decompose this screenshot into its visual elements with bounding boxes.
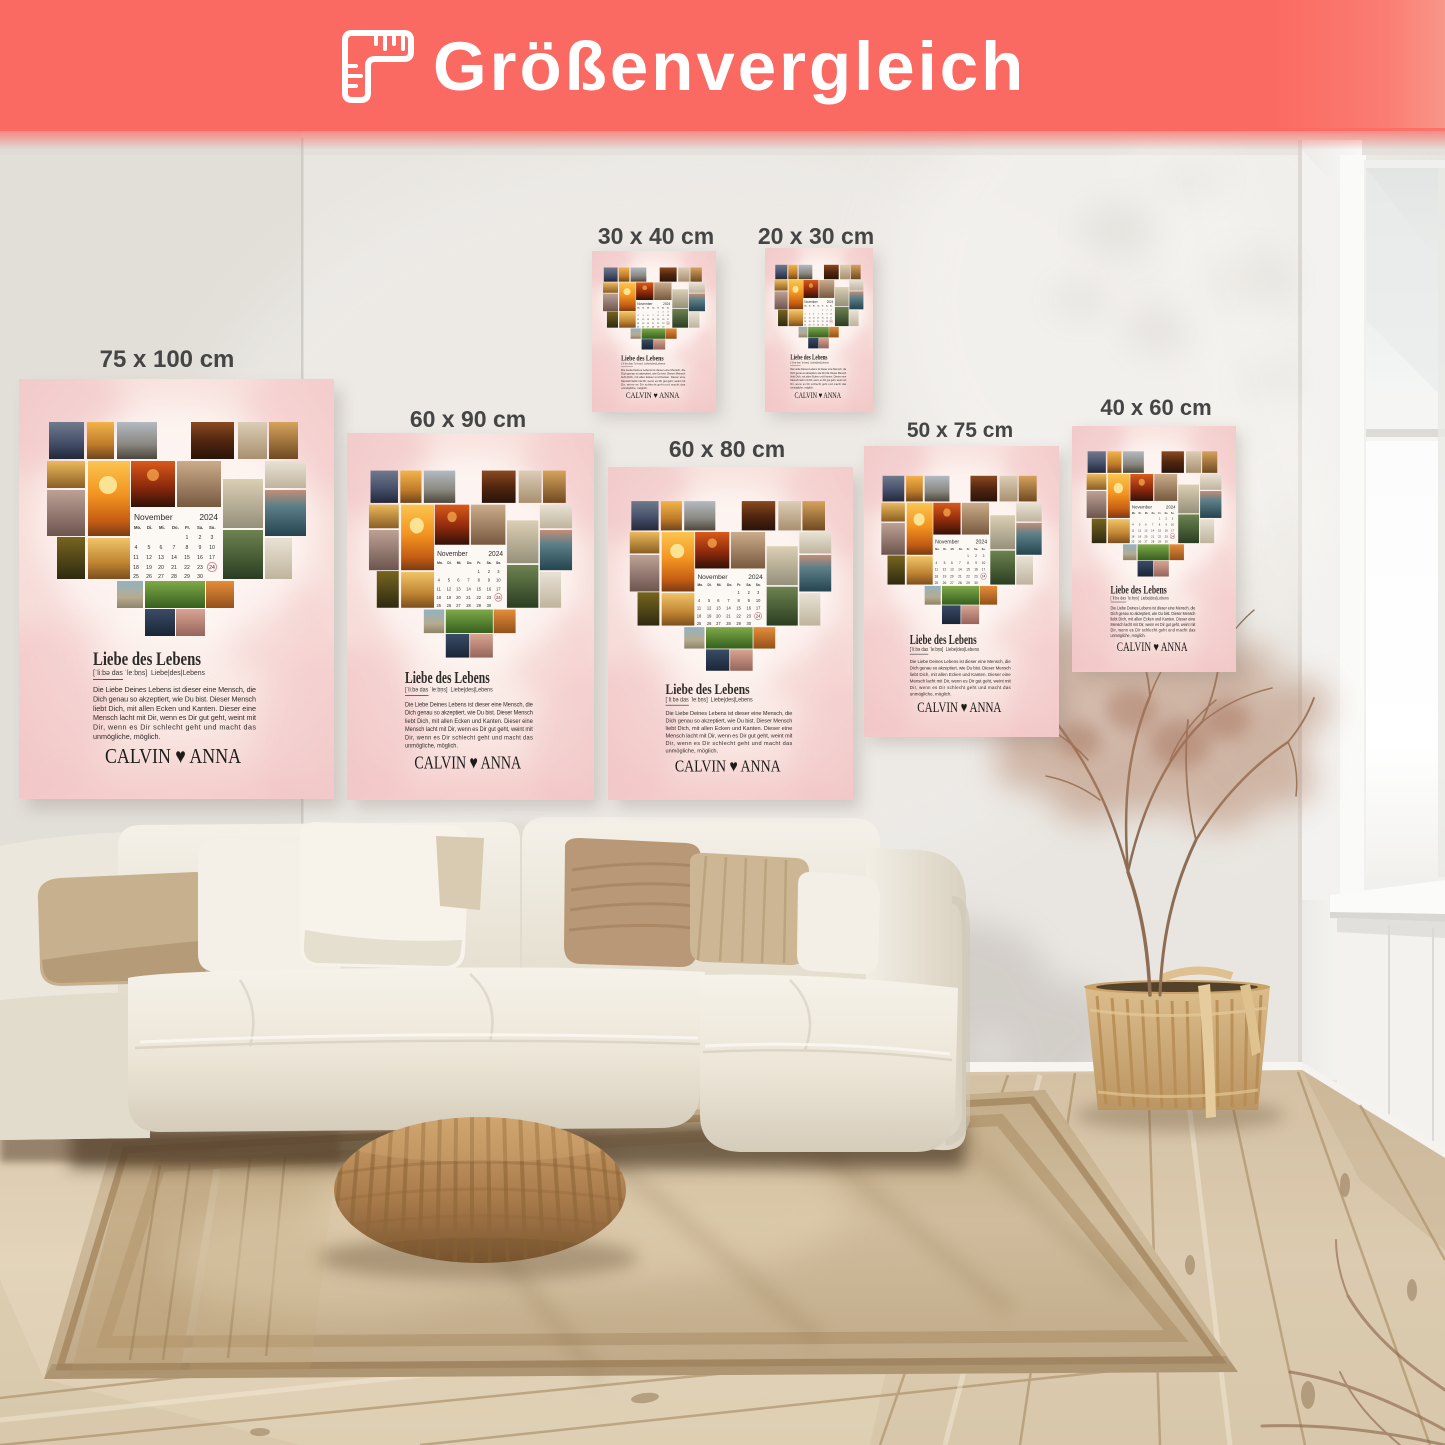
- svg-text:60 x 90 cm: 60 x 90 cm: [410, 406, 526, 432]
- svg-text:Größenvergleich: Größenvergleich: [433, 28, 1026, 105]
- svg-text:40 x 60 cm: 40 x 60 cm: [1100, 395, 1211, 420]
- svg-text:60 x 80 cm: 60 x 80 cm: [669, 436, 785, 462]
- svg-text:50 x 75 cm: 50 x 75 cm: [907, 419, 1013, 442]
- svg-text:20 x 30 cm: 20 x 30 cm: [758, 223, 874, 249]
- svg-text:75 x 100 cm: 75 x 100 cm: [100, 346, 235, 373]
- svg-text:30 x 40 cm: 30 x 40 cm: [598, 223, 714, 249]
